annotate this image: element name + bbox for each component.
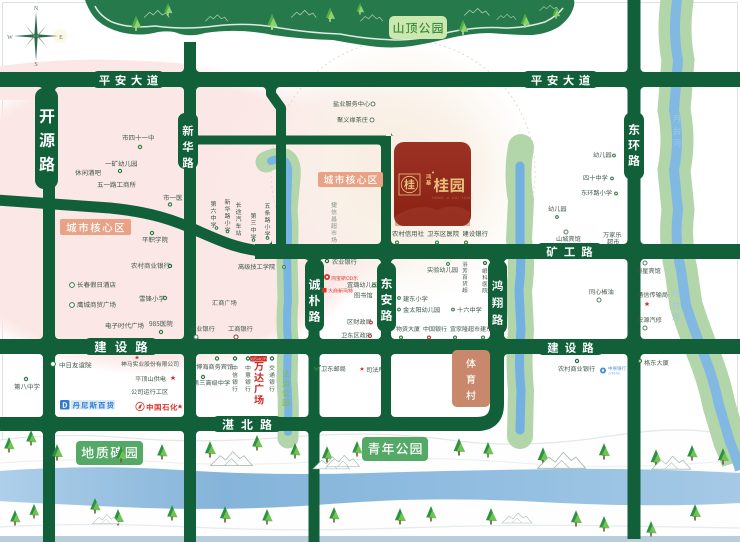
svg-text:N: N [34,6,39,12]
svg-text:S: S [34,62,37,68]
svg-text:E: E [59,35,63,41]
svg-text:W: W [7,35,13,41]
